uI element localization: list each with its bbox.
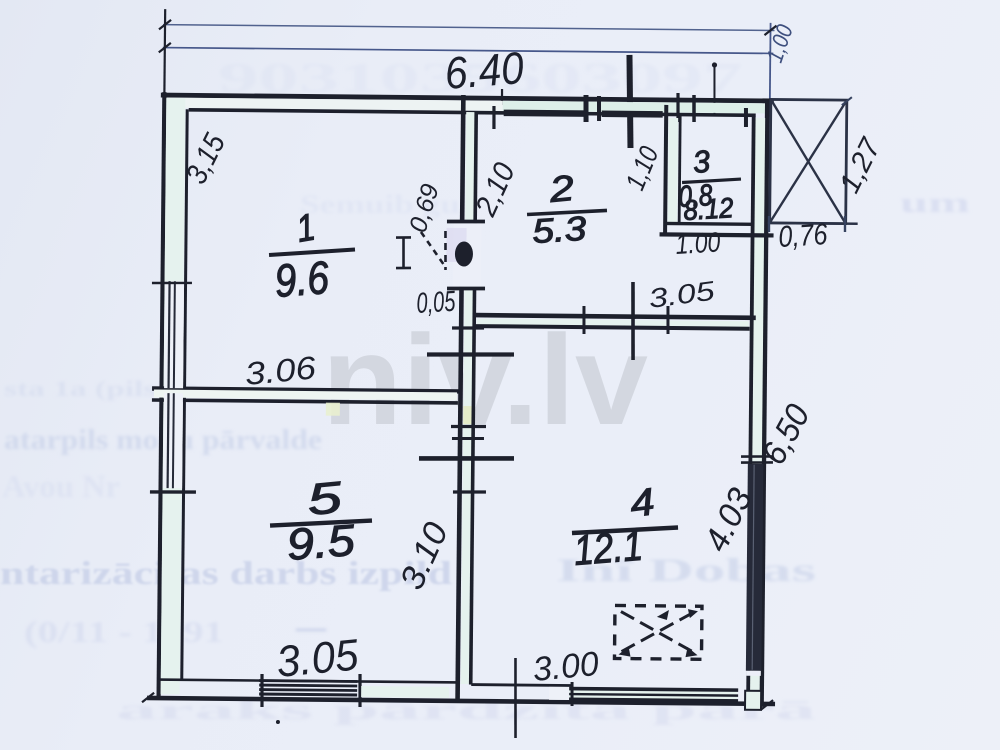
svg-text:Avou Nr: Avou Nr [2, 468, 120, 504]
svg-text:9.5: 9.5 [285, 516, 357, 570]
svg-text:1,10: 1,10 [620, 142, 665, 194]
svg-text:8.12: 8.12 [682, 192, 734, 226]
svg-text:um: um [900, 188, 970, 219]
svg-text:1,00: 1,00 [761, 21, 798, 65]
svg-text:3.06: 3.06 [243, 349, 317, 392]
svg-text:4: 4 [628, 481, 657, 526]
svg-text:3.00: 3.00 [531, 645, 600, 689]
svg-text:3.05: 3.05 [647, 275, 718, 313]
svg-text:0,76: 0,76 [777, 218, 828, 254]
svg-text:5.3: 5.3 [531, 210, 587, 251]
svg-text:2: 2 [547, 167, 576, 210]
svg-text:9.6: 9.6 [273, 251, 331, 307]
svg-text:1.00: 1.00 [674, 226, 721, 260]
svg-text:niv.lv: niv.lv [322, 309, 648, 452]
svg-text:0,69: 0,69 [404, 181, 445, 236]
svg-text:6.40: 6.40 [443, 42, 526, 99]
svg-text:3: 3 [691, 144, 711, 180]
svg-text:3.05: 3.05 [274, 630, 361, 687]
svg-text:1,27: 1,27 [834, 132, 888, 198]
svg-text:12.1: 12.1 [572, 522, 644, 574]
svg-text:0,05: 0,05 [415, 286, 456, 320]
svg-text:ntarizācijas darbs izpild: ntarizācijas darbs izpild [0, 556, 452, 592]
svg-text:(0/11 - 1091: (0/11 - 1091 [24, 614, 224, 649]
